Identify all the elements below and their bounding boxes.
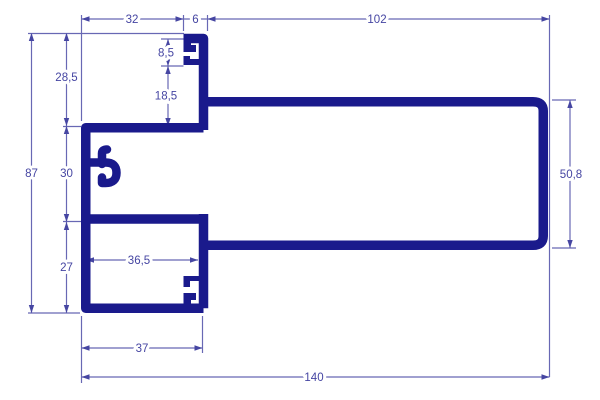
arrowhead bbox=[195, 345, 203, 350]
profile-drawing-svg: 32 6 102 8,5 28,5 18,5 87 30 50,8 36,5 2… bbox=[0, 0, 600, 400]
dim-label-28-5: 28,5 bbox=[55, 72, 77, 84]
arrowhead bbox=[165, 66, 170, 74]
extension-lines bbox=[28, 15, 576, 383]
arrowhead bbox=[64, 33, 69, 41]
arrowhead bbox=[64, 118, 69, 126]
arrowhead bbox=[190, 257, 198, 262]
dim-label-140: 140 bbox=[304, 372, 323, 384]
dim-label-27: 27 bbox=[60, 262, 73, 274]
profile-right-box bbox=[204, 102, 544, 246]
arrowheads bbox=[29, 16, 573, 379]
technical-drawing: 32 6 102 8,5 28,5 18,5 87 30 50,8 36,5 2… bbox=[0, 0, 600, 400]
dim-label-37: 37 bbox=[136, 343, 149, 355]
arrowhead bbox=[542, 374, 550, 379]
dim-label-6: 6 bbox=[192, 14, 198, 26]
arrowhead bbox=[64, 126, 69, 134]
arrowhead bbox=[82, 374, 90, 379]
dim-label-50-8: 50,8 bbox=[560, 169, 582, 181]
dim-label-36-5: 36,5 bbox=[128, 255, 150, 267]
arrowhead bbox=[82, 16, 90, 21]
profile-outline bbox=[86, 39, 544, 309]
screw-finger-lower-a bbox=[184, 276, 200, 287]
dim-label-8-5: 8,5 bbox=[158, 48, 174, 60]
arrowhead bbox=[176, 16, 184, 21]
dim-label-87: 87 bbox=[25, 168, 38, 180]
screw-channels bbox=[184, 41, 200, 304]
profile-upper-web bbox=[184, 39, 204, 131]
arrowhead bbox=[208, 16, 216, 21]
profile-gasket-hook-tip bbox=[102, 150, 107, 165]
arrowhead bbox=[82, 345, 90, 350]
dimension-labels: 32 6 102 8,5 28,5 18,5 87 30 50,8 36,5 2… bbox=[25, 14, 582, 384]
arrowhead bbox=[29, 33, 34, 41]
arrowhead bbox=[64, 305, 69, 313]
arrowhead bbox=[542, 16, 550, 21]
screw-finger-lower-b bbox=[184, 293, 197, 304]
arrowhead bbox=[64, 222, 69, 230]
dim-label-30: 30 bbox=[60, 168, 73, 180]
screw-finger-upper-b bbox=[184, 56, 200, 65]
dim-label-18-5: 18,5 bbox=[155, 91, 177, 103]
dim-label-32: 32 bbox=[126, 14, 139, 26]
dim-label-102: 102 bbox=[367, 14, 386, 26]
dimension-lines bbox=[32, 19, 571, 377]
arrowhead bbox=[567, 100, 572, 108]
arrowhead bbox=[165, 39, 170, 47]
arrowhead bbox=[567, 240, 572, 248]
arrowhead bbox=[29, 305, 34, 313]
arrowhead bbox=[64, 214, 69, 222]
